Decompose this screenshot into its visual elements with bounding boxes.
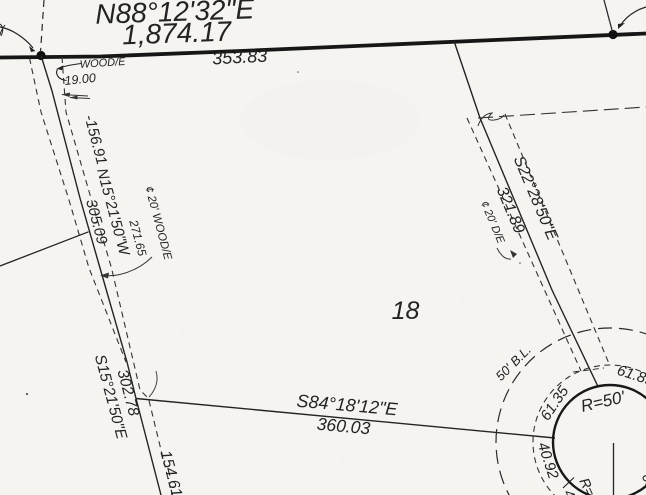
svg-text:18: 18 [392,297,420,325]
svg-text:1,874.17: 1,874.17 [122,16,233,51]
svg-text:353.83: 353.83 [212,46,268,69]
